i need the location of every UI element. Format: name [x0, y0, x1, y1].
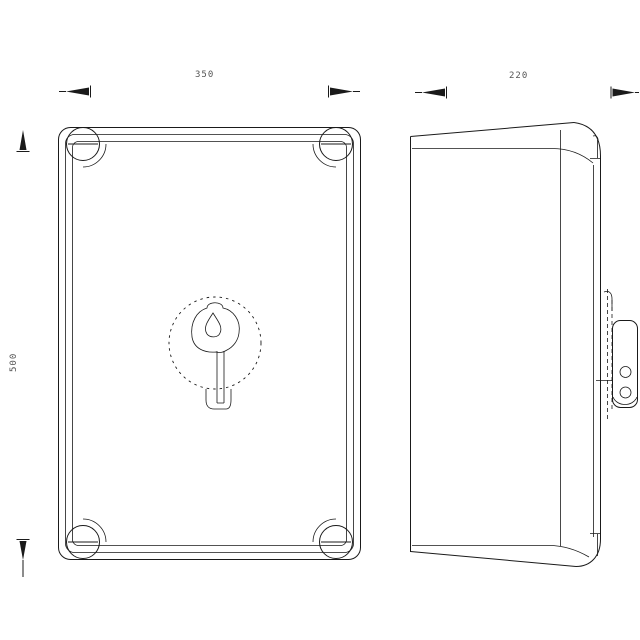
side-bottom-edge: [411, 552, 577, 567]
dim-arrow-right-icon: [330, 88, 353, 96]
dimension-front-height: 500: [9, 130, 30, 577]
side-view: [411, 123, 638, 567]
front-height-dim-text: 500: [9, 353, 19, 372]
front-lid-frame-outer: [66, 135, 354, 553]
mounting-bracket: [596, 289, 638, 419]
dim-arrow-left-icon: [422, 89, 445, 97]
dim-arrow-left-icon: [66, 88, 89, 96]
side-lid-bottom-corner: [576, 539, 601, 567]
side-inner-top-line: [412, 149, 593, 164]
bracket-hole-lower: [620, 387, 631, 398]
dim-arrow-up-icon: [20, 130, 27, 150]
front-outer-outline: [59, 128, 361, 560]
side-bottom-step-detail: [590, 534, 601, 557]
drawing-canvas: 350 220 500: [0, 0, 640, 640]
side-depth-dim-text: 220: [509, 71, 528, 81]
bracket-top-hook: [604, 291, 612, 311]
dim-arrow-down-icon: [20, 541, 27, 560]
dimension-side-depth: 220: [415, 71, 639, 99]
key-flame-detail: [205, 313, 221, 337]
bracket-hole-upper: [620, 367, 631, 378]
front-width-dim-text: 350: [195, 70, 214, 80]
dim-arrow-right-icon: [613, 89, 636, 97]
dimension-front-width: 350: [59, 70, 360, 98]
lock-clearance-dashed-circle: [169, 297, 261, 389]
side-top-edge: [411, 123, 575, 137]
bracket-outline: [613, 321, 638, 408]
side-lid-top-corner: [574, 123, 601, 157]
key-lock-assembly: [169, 297, 261, 409]
side-inner-bottom-line: [412, 546, 589, 558]
technical-drawing: 350 220 500: [0, 0, 640, 640]
key-bow: [206, 389, 231, 409]
front-lid-frame-inner: [73, 142, 347, 546]
key-shaft: [217, 351, 224, 403]
front-view: [59, 128, 361, 560]
key-head-outline: [192, 303, 240, 353]
